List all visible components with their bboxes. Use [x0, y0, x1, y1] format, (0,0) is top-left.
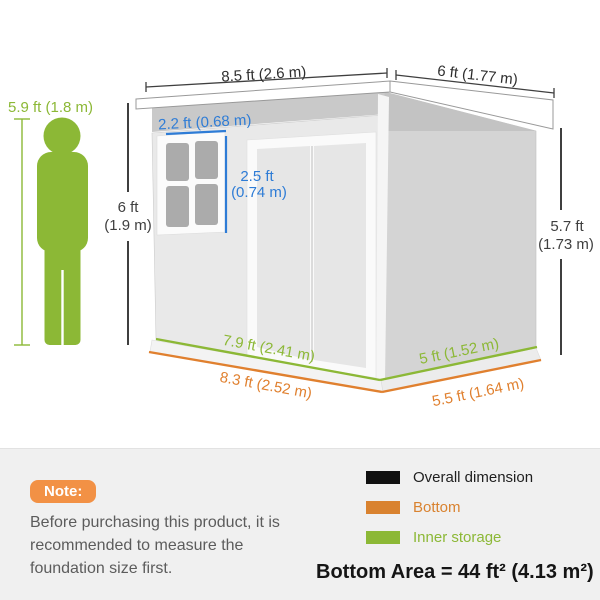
person-torso	[37, 152, 88, 252]
door-panel-right	[314, 143, 366, 368]
legend: Overall dimension Bottom Inner storage	[366, 471, 533, 561]
note-text: Before purchasing this product, it is re…	[30, 511, 305, 580]
page: 5.9 ft (1.8 m)	[0, 0, 600, 600]
legend-row-bottom: Bottom	[366, 501, 533, 514]
side-height-label-line2: (1.73 m)	[538, 236, 594, 253]
window-pane	[195, 184, 218, 225]
bottom-area-text: Bottom Area = 44 ft² (4.13 m²)	[316, 561, 594, 584]
shed-window	[157, 131, 225, 235]
legend-label-inner: Inner storage	[413, 529, 501, 546]
shed-dimension-diagram: 5.9 ft (1.8 m)	[0, 0, 600, 448]
side-height-label-line1: 5.7 ft	[550, 218, 584, 235]
front-height-label-line2: (1.9 m)	[104, 217, 152, 234]
person-figure	[37, 118, 88, 346]
legend-label-bottom: Bottom	[413, 499, 461, 516]
front-height-label-line1: 6 ft	[118, 199, 140, 216]
window-height-label-line1: 2.5 ft	[240, 168, 274, 185]
note-badge: Note:	[30, 480, 96, 503]
window-pane	[166, 143, 189, 181]
person-head	[44, 118, 81, 155]
info-panel: Note: Before purchasing this product, it…	[0, 448, 600, 600]
legend-label-overall: Overall dimension	[413, 469, 533, 486]
window-height-label-line2: (0.74 m)	[231, 184, 287, 201]
shed-side-wall	[381, 92, 536, 380]
overall-dimension-swatch	[366, 471, 400, 484]
inner-storage-swatch	[366, 531, 400, 544]
person-height-label: 5.9 ft (1.8 m)	[8, 99, 93, 116]
legend-row-inner: Inner storage	[366, 531, 533, 544]
bottom-swatch	[366, 501, 400, 514]
window-pane	[166, 186, 189, 227]
legend-row-overall: Overall dimension	[366, 471, 533, 484]
window-pane	[195, 141, 218, 179]
roof-front-width-label: 8.5 ft (2.6 m)	[221, 63, 307, 85]
